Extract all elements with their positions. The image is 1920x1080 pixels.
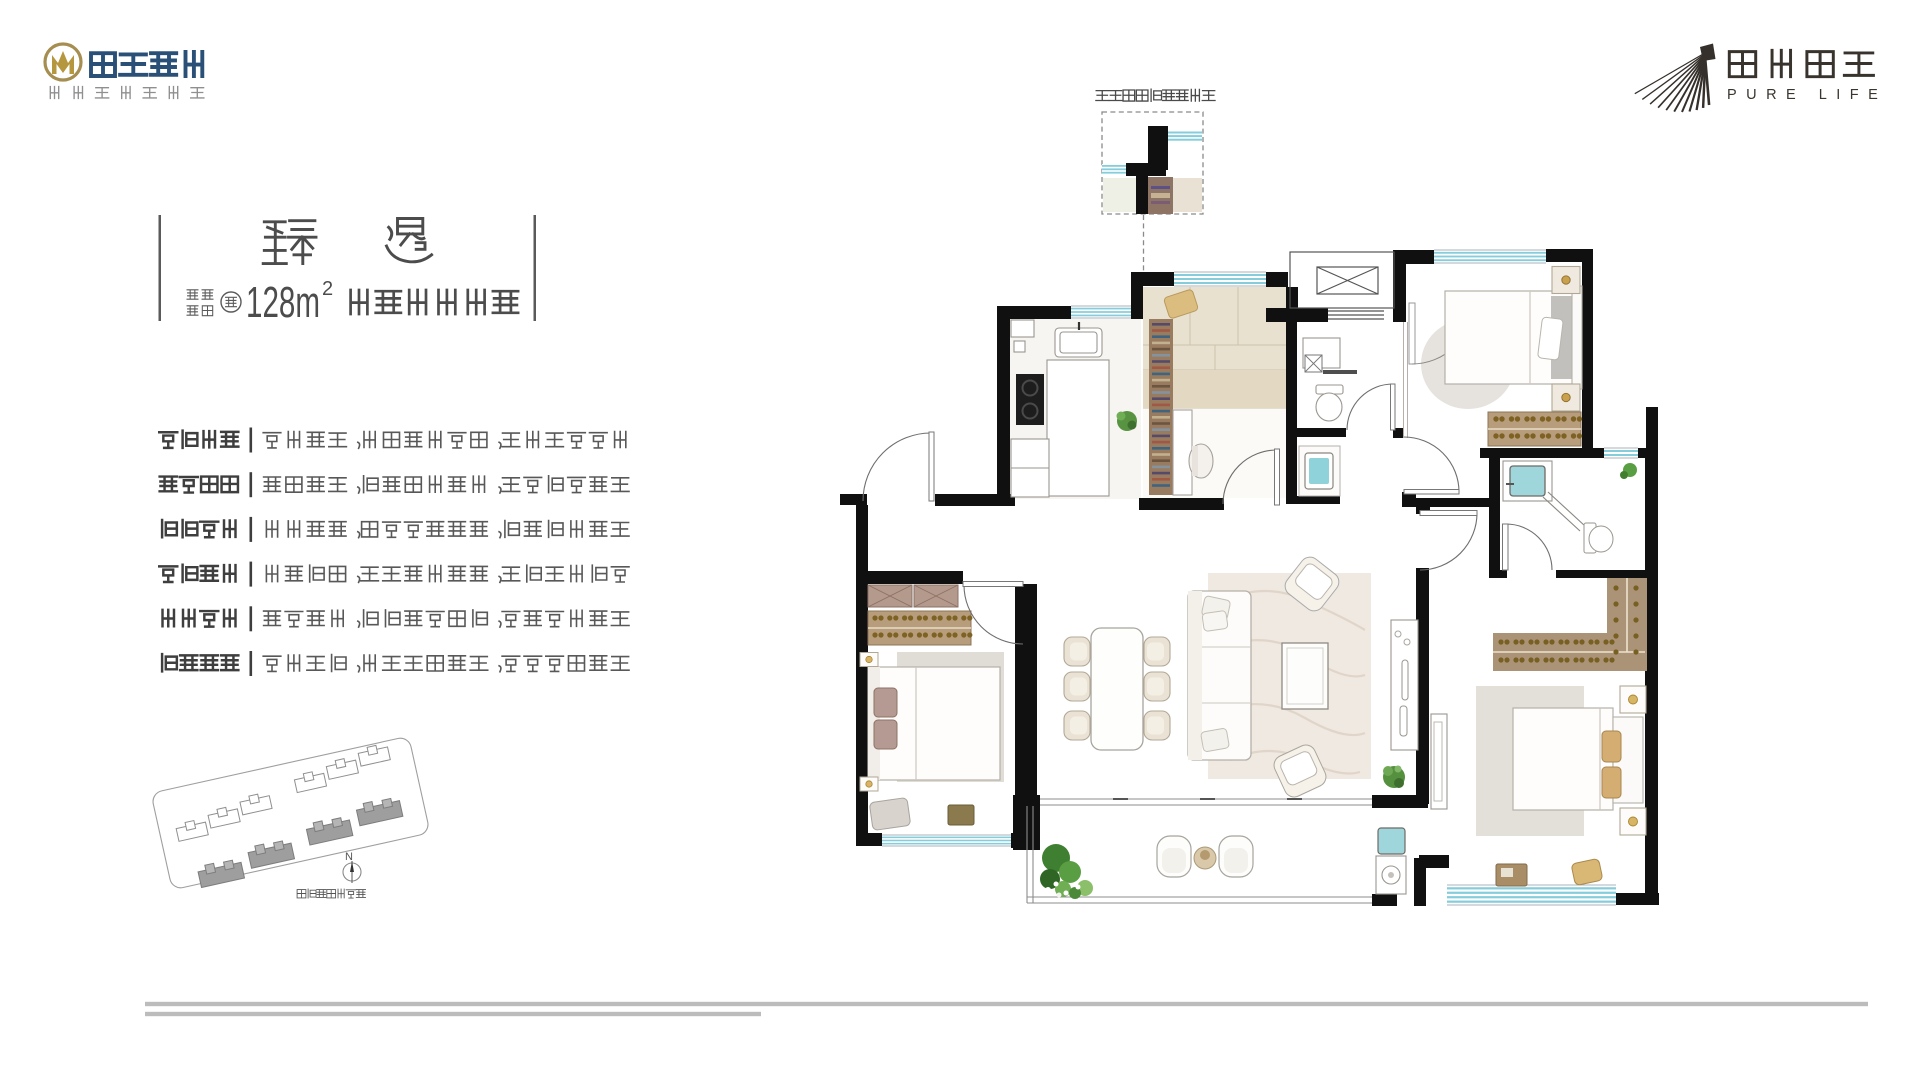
svg-text:2: 2 bbox=[322, 278, 333, 300]
svg-text:128m: 128m bbox=[246, 278, 320, 327]
svg-text:PURE LIFE: PURE LIFE bbox=[1727, 87, 1883, 103]
